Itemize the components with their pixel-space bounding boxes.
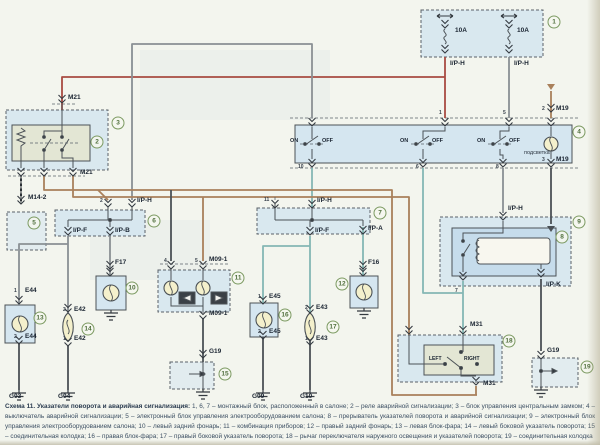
label-b4-pin1: 1 [439,110,442,116]
label-e43-2: E43 [316,304,328,311]
component-ref-1: 1 [548,16,561,29]
label-lever-right: RIGHT [464,356,480,362]
lamp-10-bulb [103,285,119,301]
label-b4-pin6: 6 [416,164,419,170]
label-b6-ipb: I/P-B [115,227,130,234]
component-ref-4: 4 [573,126,586,139]
label-m09-bottom: M09-1 [209,310,227,317]
label-b7-pin11: 11 [264,197,269,203]
label-e45-2: E45 [269,328,281,335]
label-e42-1-pin: 1 [63,336,66,342]
component-ref-17: 17 [327,321,340,334]
label-sw3-off: OFF [509,138,520,144]
label-b9-iph: I/P-H [508,205,523,212]
label-e43-1: E43 [316,335,328,342]
label-g19-right: G19 [547,347,559,354]
label-e45-2-pin: 2 [258,329,261,335]
label-sw3-on: ON [477,138,485,144]
component-ref-3: 3 [112,117,125,130]
label-e44-1: E44 [25,287,37,294]
label-fuse1-output: I/P-H [450,60,465,67]
lamp-13-bulb [12,316,28,332]
label-g09: G09 [252,393,264,400]
label-e42-1: E42 [74,335,86,342]
scanned-wiring-diagram-page: 10A10AI/P-HI/P-H2M193M19ONOFFONOFFONOFFп… [0,0,600,445]
right-indicator-lamp [196,281,210,295]
label-g04: G04 [58,393,70,400]
label-m19-bottom: M19 [556,156,569,163]
label-e45-1-pin: 1 [258,294,261,300]
label-b4-pin5: 5 [503,110,506,116]
label-e44-2-pin: 2 [14,334,17,340]
component-ref-6: 6 [148,215,161,228]
page-edge-shading [587,0,600,445]
label-m19-top: M19 [556,105,569,112]
label-b6-ipf: I/P-F [73,227,87,234]
component-ref-16: 16 [279,309,292,322]
label-sw2-off: OFF [432,138,443,144]
label-e42-2: E42 [74,306,86,313]
label-m21-bottom: M21 [80,169,93,176]
label-f16: F16 [368,259,379,266]
label-m14-2: M14-2 [28,194,46,201]
component-ref-11: 11 [232,272,245,285]
component-ref-5: 5 [28,217,41,230]
label-b4-pin10: 10 [298,164,304,170]
scan-ghost [140,50,330,120]
label-e44-1-pin: 1 [14,288,17,294]
label-m31-top: M31 [470,321,483,328]
label-fuse2-rating: 10A [517,27,529,34]
label-m09-top: M09-1 [209,256,227,263]
component-ref-7: 7 [374,207,387,220]
junction-block-15 [170,362,214,389]
label-m19-top-pin: 2 [542,106,545,112]
label-b9-pin7: 7 [455,288,458,294]
component-ref-2: 2 [91,136,104,149]
label-illumination: подсветка [524,150,550,156]
wiring-diagram-svg [0,0,600,445]
turn-lever-switch-block-18 [398,335,502,382]
label-sw1-on: ON [290,138,298,144]
wires-teal [263,168,463,335]
label-e45-1: E45 [269,293,281,300]
label-lever-left: LEFT [429,356,442,362]
label-fuse2-output: I/P-H [514,60,529,67]
label-g03: G03 [9,393,21,400]
caption-title: Схема 11. Указатели поворота и аварийная… [5,403,190,410]
label-b7-ipa: I/P-A [368,225,383,232]
component-ref-12: 12 [336,278,349,291]
label-e42-2-pin: 2 [63,307,66,313]
label-b4-pin8: 8 [496,164,499,170]
component-ref-18: 18 [503,335,516,348]
label-b7-iph: I/P-H [317,197,332,204]
power-feed-arrow [547,84,555,90]
component-ref-10: 10 [126,282,139,295]
label-m09-pin4: 4 [164,258,167,264]
label-e43-1-pin: 1 [305,336,308,342]
label-b6-pin2: 2 [100,198,103,204]
page-bottom-edge [0,440,600,445]
legend-caption: Схема 11. Указатели поворота и аварийная… [5,402,595,442]
label-ipk: I/P-K [546,281,561,288]
label-b7-ipf: I/P-F [315,227,329,234]
illumination-lamp [544,137,558,151]
lamp-12-bulb [356,284,372,300]
component-ref-14: 14 [82,323,95,336]
label-g19-cluster: G19 [209,348,221,355]
label-m21-top: M21 [68,94,81,101]
lamp-16-bulb [256,312,272,328]
label-e44-2: E44 [25,333,37,340]
component-ref-13: 13 [34,312,47,325]
component-ref-9: 9 [573,216,586,229]
label-sw2-on: ON [400,138,408,144]
component-ref-8: 8 [556,231,569,244]
label-g10: G10 [300,393,312,400]
component-ref-15: 15 [219,368,232,381]
label-fuse1-rating: 10A [455,27,467,34]
label-f17: F17 [115,259,126,266]
label-m31-bottom: M31 [483,380,496,387]
label-e43-2-pin: 2 [305,305,308,311]
label-sw1-off: OFF [322,138,333,144]
label-m09-pin5: 5 [195,258,198,264]
label-b6-iph: I/P-H [137,197,152,204]
left-indicator-lamp [164,281,178,295]
label-m19-bottom-pin: 3 [542,157,545,163]
